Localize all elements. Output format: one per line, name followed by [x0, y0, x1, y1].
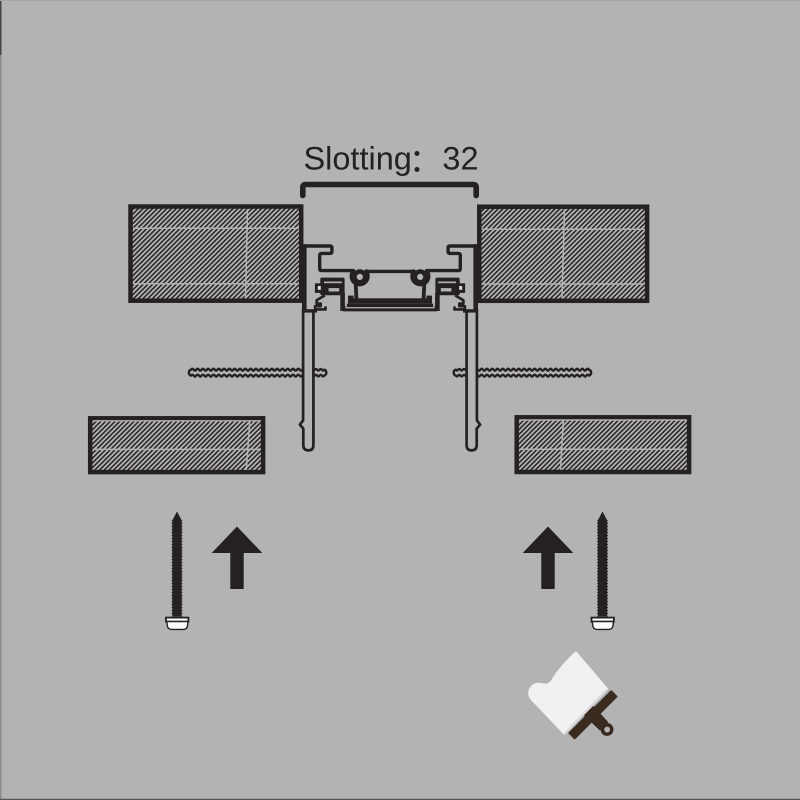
svg-text:Slotting：32: Slotting：32 — [303, 141, 478, 179]
